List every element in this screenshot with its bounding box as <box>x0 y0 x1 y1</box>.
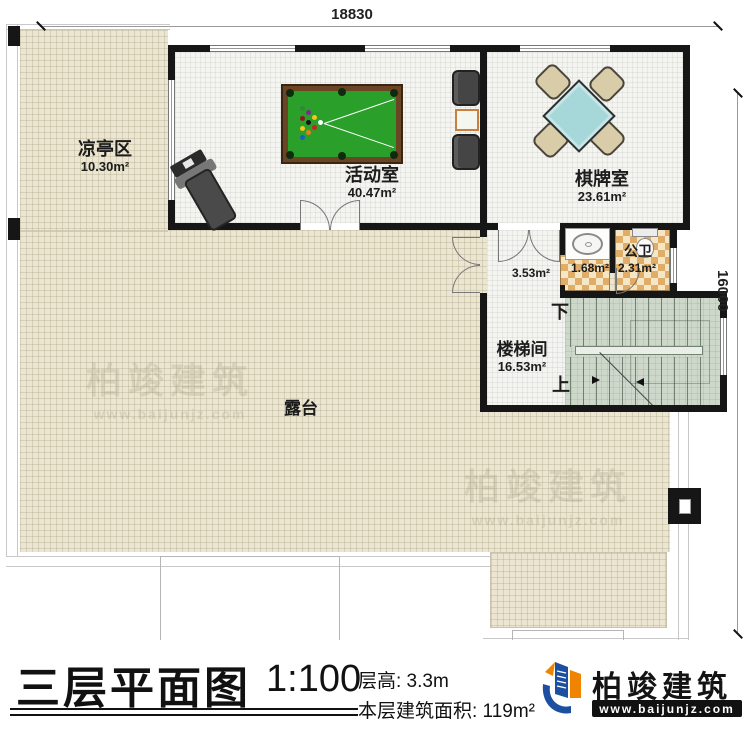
window-top-3 <box>520 45 610 52</box>
wall-top-2 <box>295 45 365 52</box>
pool-balls <box>300 109 328 139</box>
wall-bath-right-1 <box>670 228 677 248</box>
window-stair-right <box>720 318 727 375</box>
bath-area: 2.31m² <box>618 262 656 275</box>
activity-area: 40.47m² <box>348 186 396 200</box>
wash-area: 1.68m² <box>571 262 609 275</box>
wall-bottom-1 <box>168 223 300 230</box>
wall-stair-top <box>560 291 727 298</box>
terrace-column-core <box>679 499 691 514</box>
railing-left-outer <box>6 24 7 556</box>
pavilion-edge-line <box>20 231 168 232</box>
pavilion-column-bottom <box>8 218 20 240</box>
dim-top-value: 18830 <box>331 6 373 23</box>
stair-handrail <box>575 346 703 355</box>
pool-cue-line-1 <box>324 99 394 124</box>
stair-arrow-left <box>592 376 600 384</box>
terrace-label: 露台 <box>284 400 318 418</box>
wall-top-3 <box>450 45 520 52</box>
window-bath-right <box>670 248 677 283</box>
pool-table <box>283 86 401 162</box>
floor-plan-page: 柏竣建筑 www.baijunjz.com 柏竣建筑 www.baijunjz.… <box>0 0 750 730</box>
pavilion-floor <box>20 30 168 230</box>
window-top-1 <box>210 45 295 52</box>
stair-down-label: 下 <box>551 303 569 322</box>
side-table <box>455 109 479 131</box>
wall-bottom-3 <box>487 223 498 230</box>
dim-right-value: 16000 <box>714 270 731 312</box>
wall-left-1 <box>168 45 175 80</box>
dim-tick-right-bottom <box>733 629 743 639</box>
brand-logo-icon <box>534 658 586 722</box>
terrace-extension-floor <box>490 552 667 628</box>
dim-line-top <box>40 26 718 27</box>
chess-label: 棋牌室 <box>575 170 629 189</box>
stairwell-area: 16.53m² <box>498 360 546 374</box>
chess-area: 23.61m² <box>578 190 626 204</box>
pavilion-column-top <box>8 26 20 46</box>
wall-top-4 <box>610 45 690 52</box>
dim-line-right <box>737 93 738 634</box>
plan-title: 三层平面图 <box>16 652 251 716</box>
stairwell-label: 楼梯间 <box>497 341 548 359</box>
brand-logo <box>534 658 586 722</box>
pool-pocket <box>338 88 346 96</box>
wall-stair-right-2 <box>720 375 727 412</box>
brand-url: www.baijunjz.com <box>592 700 742 717</box>
wall-bath-divider <box>610 228 615 273</box>
wall-stair-bottom <box>483 405 727 412</box>
railing-left-inner <box>17 24 18 556</box>
floor-area-text: 本层建筑面积: 119m² <box>358 696 535 723</box>
wall-hall-left-bottom <box>480 293 487 412</box>
pool-cue-line-2 <box>324 123 394 148</box>
armchair-top <box>452 70 480 106</box>
pavilion-area: 10.30m² <box>81 160 129 174</box>
railing-top-outer <box>6 24 170 25</box>
activity-label: 活动室 <box>345 166 399 185</box>
pool-pocket <box>390 89 398 97</box>
hall-area: 3.53m² <box>512 267 550 280</box>
armchair-bottom <box>452 134 480 170</box>
railing-right-inner <box>688 412 689 640</box>
pool-pocket <box>338 152 346 160</box>
pavilion-label: 凉亭区 <box>78 140 132 159</box>
railing-right-outer <box>678 412 679 640</box>
title-block: 三层平面图 1:100 层高: 3.3m 本层建筑面积: 119m² 柏竣建筑 … <box>0 640 750 730</box>
wall-bottom-2 <box>360 223 487 230</box>
pool-pocket <box>286 151 294 159</box>
title-underline-2 <box>10 714 358 716</box>
plan-scale: 1:100 <box>266 658 361 701</box>
stair-up-label: 上 <box>552 376 570 395</box>
pool-pocket <box>286 89 294 97</box>
dim-tick-right-top <box>733 88 743 98</box>
bath-label: 公卫 <box>624 244 652 259</box>
wall-right-chess <box>683 45 690 230</box>
stair-arrow-right <box>636 378 644 386</box>
wall-hall-left-top <box>480 230 487 237</box>
basin <box>572 233 603 255</box>
pool-pocket <box>390 151 398 159</box>
title-underline-1 <box>10 708 358 710</box>
window-top-2 <box>365 45 450 52</box>
floor-height-text: 层高: 3.3m <box>358 666 449 693</box>
wall-divider-rooms <box>480 52 487 223</box>
